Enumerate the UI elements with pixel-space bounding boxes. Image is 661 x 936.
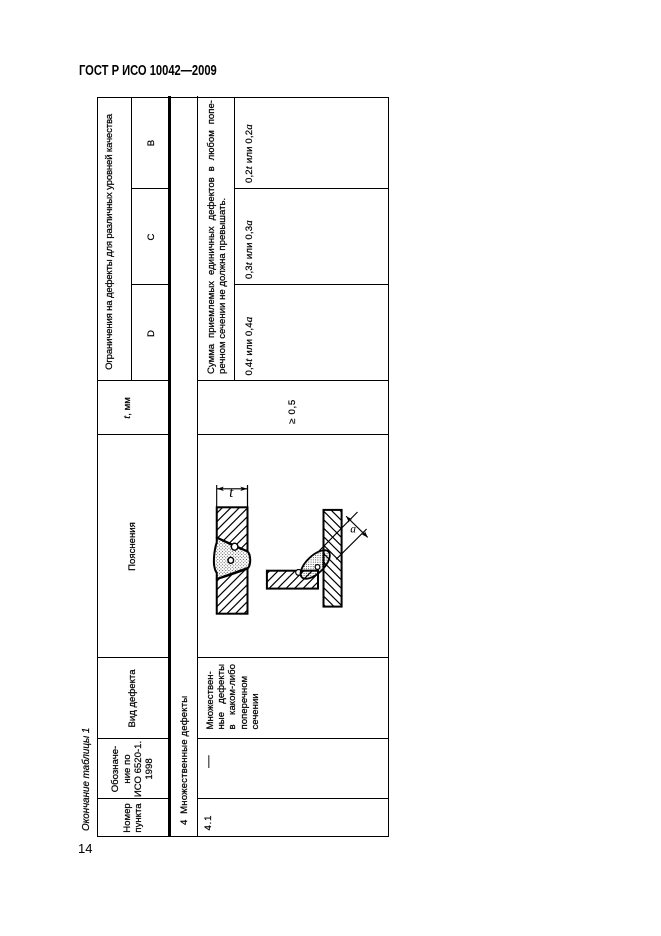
svg-text:t: t — [229, 485, 234, 501]
svg-text:a: a — [350, 524, 356, 536]
